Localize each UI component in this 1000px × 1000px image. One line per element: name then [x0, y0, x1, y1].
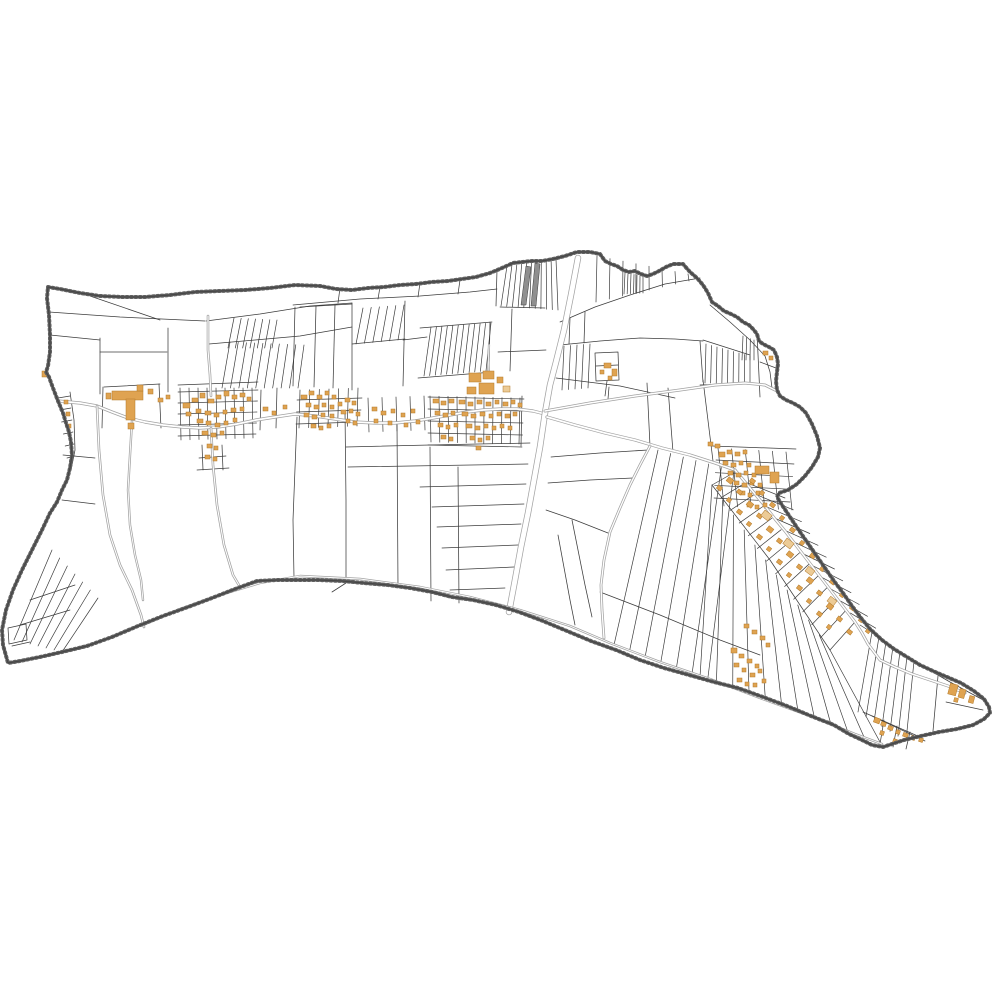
- parcel-line: [560, 278, 700, 322]
- building: [477, 400, 482, 404]
- building: [731, 463, 736, 467]
- parcel-line: [403, 337, 427, 340]
- building: [500, 424, 504, 428]
- road-casing-lane-west-1: [97, 406, 144, 627]
- building: [309, 391, 314, 395]
- building: [213, 457, 217, 461]
- building: [411, 409, 415, 413]
- building: [734, 663, 739, 667]
- parcel-line: [712, 446, 796, 449]
- parcel-line: [933, 676, 938, 731]
- building: [128, 423, 134, 429]
- parcel-strip-line-ribbon-long-strips: [766, 560, 782, 707]
- parcel-strip-line-corner-strips: [30, 566, 67, 644]
- parcel-line: [49, 312, 205, 321]
- parcel-line: [293, 417, 297, 578]
- building: [205, 411, 211, 415]
- building: [332, 395, 336, 399]
- building: [263, 407, 268, 411]
- building: [304, 413, 309, 417]
- building: [723, 461, 728, 465]
- parcel-strip-line-dense-fan: [463, 324, 469, 372]
- parcel-line: [500, 307, 545, 308]
- building: [608, 376, 612, 380]
- building: [513, 412, 517, 416]
- building: [734, 481, 739, 485]
- parcel-strip-line-dense-fan: [447, 326, 453, 375]
- parcel-strip-line-upper-west-strips: [272, 320, 277, 348]
- parcel-strip-line-east-of-road-strips: [569, 346, 571, 390]
- parcel-strip-line-east-of-road-strips: [582, 345, 584, 389]
- building: [776, 559, 782, 565]
- building: [786, 551, 794, 559]
- building: [755, 664, 759, 668]
- parcel-line: [8, 624, 27, 644]
- parcel-strip-line-northeast-dense: [711, 346, 712, 384]
- parcel-line: [432, 504, 524, 507]
- building: [233, 418, 237, 422]
- building: [215, 423, 220, 427]
- building: [441, 435, 446, 439]
- parcel-line: [560, 338, 703, 345]
- building: [518, 403, 522, 407]
- building: [762, 679, 766, 683]
- building: [356, 412, 360, 416]
- parcel-strip-line-east-cluster-horiz: [715, 485, 792, 489]
- parcel-lines-layer: [8, 256, 985, 749]
- building: [873, 717, 880, 724]
- parcel-strip-line-dense-fan: [469, 324, 475, 372]
- cadastral-map-svg: [0, 0, 1000, 1000]
- parcel-strip-line-village-d-horiz: [428, 445, 522, 447]
- building: [327, 424, 331, 428]
- parcel-strip-line-village-d-vert: [501, 398, 502, 444]
- parcel-line: [446, 567, 514, 570]
- road-road-south-branch: [601, 446, 650, 638]
- parcel-line: [178, 382, 258, 385]
- building: [495, 400, 499, 404]
- building: [66, 412, 70, 416]
- building: [726, 497, 732, 503]
- parcel-line: [276, 388, 277, 428]
- cadastral-map-view: [0, 0, 1000, 1000]
- parcel-line: [496, 270, 497, 306]
- parcel-strip-line-top-center-strips: [551, 260, 552, 310]
- building: [435, 411, 440, 415]
- parcel-strip-line-mini-group: [746, 337, 747, 360]
- building: [330, 414, 334, 418]
- building: [954, 698, 959, 703]
- building: [314, 405, 319, 409]
- parcel-strip-line-west-strips: [281, 344, 287, 388]
- parcel-line: [430, 447, 431, 601]
- parcel-strip-line-village-b-horiz: [178, 390, 258, 392]
- road-ribbon-street: [735, 470, 965, 693]
- building: [511, 400, 515, 404]
- building: [443, 413, 448, 417]
- building: [197, 419, 203, 423]
- parcel-line: [498, 350, 546, 352]
- parcel-line: [584, 312, 585, 343]
- building: [106, 393, 111, 399]
- parcel-line: [437, 524, 521, 527]
- building: [224, 421, 228, 425]
- building: [470, 436, 475, 440]
- parcel-line: [90, 296, 160, 320]
- parcel-strip-line-top-center-strips: [501, 266, 507, 306]
- parcel-strip-line-village-b-vert: [252, 388, 253, 438]
- parcel-strip-line-dense-fan: [430, 327, 437, 376]
- building: [451, 411, 455, 415]
- building: [755, 466, 769, 474]
- parcel-line: [300, 304, 352, 307]
- building: [746, 521, 752, 527]
- parcel-strip-line-dense-fan: [441, 326, 447, 375]
- parcel-strip-line-southeast-steep: [677, 464, 709, 666]
- municipal-boundary-line: [2, 252, 990, 747]
- parcel-strip-line-southeast-steep: [630, 454, 671, 651]
- hatched-parcel: [531, 263, 540, 306]
- parcel-strip-line-top-right-tight: [624, 273, 625, 294]
- parcel-line: [605, 381, 607, 396]
- building: [766, 546, 772, 552]
- parcel-strip-line-mid-strips: [356, 308, 363, 344]
- building: [776, 538, 782, 544]
- parcel-strip-line-village-d-vert: [510, 398, 511, 444]
- building: [214, 413, 219, 417]
- building: [166, 395, 170, 399]
- parcel-line: [159, 384, 161, 428]
- building: [317, 395, 322, 399]
- building: [148, 389, 153, 394]
- building: [319, 426, 323, 430]
- building: [330, 405, 334, 409]
- parcel-line: [293, 307, 295, 386]
- building: [454, 423, 458, 427]
- building: [497, 377, 503, 383]
- parcel-strip-line-northeast-dense: [716, 347, 717, 383]
- parcel-line: [450, 588, 505, 590]
- building: [388, 421, 392, 425]
- parcel-strip-line-west-strips: [273, 344, 280, 388]
- road-casing-road-northeast: [545, 383, 775, 411]
- parcel-strip-line-village-cd-vert: [368, 398, 369, 432]
- building: [486, 402, 491, 406]
- parcel-strip-line-village-cd-vert: [410, 397, 411, 431]
- parcel-strip-line-village-c-vert: [309, 390, 310, 428]
- building: [202, 431, 208, 435]
- building: [756, 534, 762, 540]
- building: [747, 659, 752, 663]
- parcel-strip-line-neck-strips: [858, 632, 872, 712]
- parcel-line: [569, 318, 570, 344]
- building: [207, 444, 212, 448]
- road-casing-lane-west-3: [211, 428, 240, 587]
- building: [338, 402, 342, 406]
- building: [186, 412, 191, 416]
- building: [796, 564, 802, 570]
- building: [742, 668, 746, 672]
- parcel-strip-line-top-center-strips: [518, 264, 522, 307]
- building: [816, 611, 822, 617]
- parcel-strip-line-east-cluster-vert: [786, 452, 792, 510]
- building: [806, 577, 814, 585]
- parcel-strip-line-corner-strips: [54, 590, 90, 650]
- parcel-strip-line-village-d-horiz: [428, 421, 523, 423]
- building: [220, 431, 224, 435]
- building: [753, 683, 757, 687]
- building: [196, 409, 201, 413]
- parcel-line: [418, 372, 493, 378]
- parcel-strip-line-west-strips: [298, 345, 304, 388]
- building: [752, 630, 757, 634]
- building: [322, 403, 326, 407]
- building: [206, 421, 211, 425]
- parcel-strip-line-southeast-steep: [645, 457, 683, 656]
- building: [769, 356, 773, 360]
- building: [789, 527, 795, 533]
- building: [192, 398, 198, 402]
- building: [492, 426, 496, 430]
- building: [604, 363, 611, 368]
- parcel-line: [548, 478, 633, 483]
- building: [760, 636, 765, 640]
- building: [968, 695, 975, 703]
- building: [311, 424, 316, 428]
- building: [469, 373, 481, 382]
- building: [737, 678, 742, 682]
- building: [223, 410, 227, 414]
- building: [600, 370, 604, 374]
- parcel-line: [333, 305, 335, 388]
- parcel-strip-line-northeast-dense: [722, 349, 723, 384]
- parcel-line: [946, 702, 983, 710]
- parcel-strip-line-village-d-horiz: [428, 397, 524, 399]
- building: [306, 403, 311, 407]
- building: [216, 395, 221, 399]
- parcel-strip-line-village-c-vert: [357, 388, 358, 426]
- parcel-strip-line-west-strips: [239, 343, 247, 388]
- building: [748, 493, 752, 497]
- parcel-strip-line-top-right-verticals: [596, 256, 597, 302]
- building: [742, 483, 747, 487]
- parcel-strip-line-corner-strips: [14, 550, 52, 640]
- parcel-line: [397, 423, 398, 588]
- building: [736, 473, 741, 477]
- parcel-strip-line-ribbon-west-ticks: [830, 622, 855, 650]
- building: [475, 426, 480, 430]
- building: [374, 419, 378, 423]
- building: [372, 407, 377, 411]
- parcel-strip-line-top-right-tight: [627, 274, 628, 294]
- building: [325, 391, 329, 395]
- parcel-strip-line-dense-fan: [458, 325, 464, 373]
- parcel-strip-line-west-strips: [264, 344, 271, 388]
- parcel-strip-line-west-boundary-ticks: [58, 396, 70, 398]
- building: [137, 385, 143, 391]
- building: [497, 412, 501, 416]
- building: [283, 405, 287, 409]
- parcel-strip-line-west-strips: [222, 342, 230, 388]
- building: [750, 673, 755, 677]
- building: [879, 730, 884, 735]
- parcel-strip-line-east-cluster-vert: [732, 449, 738, 507]
- building: [466, 424, 472, 428]
- building: [416, 420, 420, 424]
- building: [352, 401, 356, 405]
- building: [240, 407, 244, 411]
- parcel-line: [403, 301, 405, 386]
- parcel-strip-line-ribbon-west-ticks: [821, 610, 846, 637]
- parcel-strip-line-village-cd-vert: [396, 397, 397, 431]
- parcel-strip-line-dense-fan: [475, 324, 480, 372]
- parcel-strip-line-village-c-vert: [299, 390, 300, 428]
- parcel-strip-line-upper-west-strips: [265, 320, 270, 348]
- building: [112, 391, 143, 400]
- building: [231, 408, 236, 412]
- building: [449, 399, 454, 403]
- building: [459, 400, 465, 404]
- municipal-boundary-layer: [2, 252, 990, 747]
- building: [763, 351, 768, 355]
- parcel-line: [608, 387, 609, 399]
- parcel-line: [332, 412, 346, 592]
- municipal-boundary-hatch: [2, 252, 990, 747]
- parcel-strip-line-upper-west-strips: [228, 318, 234, 348]
- parcel-strip-line-upper-west-strips: [257, 319, 262, 348]
- parcel-strip-line-mid-strips: [398, 305, 404, 340]
- building: [755, 505, 759, 509]
- parcel-strip-line-ribbon-long-strips: [733, 515, 734, 689]
- parcel-strip-line-dense-fan: [424, 327, 431, 376]
- parcel-strip-line-northeast-dense: [728, 350, 729, 383]
- building: [240, 393, 245, 397]
- building: [846, 629, 852, 635]
- building: [433, 399, 439, 403]
- building: [758, 483, 762, 487]
- building: [208, 399, 214, 403]
- building: [836, 616, 842, 622]
- parcel-line: [206, 303, 352, 321]
- building: [796, 585, 802, 591]
- building: [401, 413, 405, 417]
- building: [441, 401, 446, 405]
- building: [731, 648, 737, 653]
- parcel-strip-line-dense-fan: [435, 326, 442, 375]
- parcel-line: [293, 289, 497, 305]
- building: [341, 410, 346, 414]
- parcel-line: [50, 335, 100, 340]
- parcel-strip-line-ribbon-long-strips: [700, 485, 712, 677]
- building: [478, 438, 482, 442]
- building: [484, 424, 488, 428]
- parcel-strip-line-ribbon-long-strips: [787, 590, 814, 718]
- building: [480, 412, 485, 416]
- building: [715, 444, 720, 448]
- building: [158, 398, 163, 402]
- parcel-strip-line-top-right-tight: [630, 274, 631, 294]
- parcel-strip-line-east-of-road-strips: [588, 344, 590, 388]
- building: [312, 415, 317, 419]
- parcel-strip-line-east-of-road-strips: [562, 346, 564, 390]
- building: [205, 455, 210, 459]
- building: [503, 402, 508, 406]
- parcel-strip-line-west-strips: [247, 343, 254, 388]
- parcel-strip-line-ribbon-west-ticks: [803, 587, 828, 612]
- building: [489, 414, 493, 418]
- building: [826, 624, 832, 630]
- building: [381, 411, 386, 415]
- building: [446, 425, 450, 429]
- building: [766, 643, 770, 647]
- building: [743, 450, 747, 454]
- parcel-strip-line-top-center-strips: [556, 259, 558, 310]
- parcel-line: [551, 450, 648, 457]
- parcel-strip-line-ribbon-long-strips: [716, 500, 722, 683]
- building: [769, 502, 775, 508]
- parcel-strip-line-mid-strips: [373, 307, 380, 343]
- parcel-strip-line-southeast-steep: [661, 461, 696, 662]
- parcel-strip-line-village-cd-vert: [424, 396, 425, 430]
- building: [462, 412, 468, 416]
- parcel-line: [442, 545, 518, 548]
- parcel-strip-line-mid-strips: [381, 306, 387, 341]
- building: [719, 452, 725, 457]
- building: [232, 395, 237, 399]
- parcel-line: [863, 712, 920, 737]
- building: [505, 414, 510, 418]
- parcel-strip-line-dense-fan: [480, 323, 485, 371]
- parcel-strip-line-dense-fan: [452, 325, 458, 374]
- parcel-strip-line-northeast-dense: [705, 344, 706, 383]
- building: [744, 471, 748, 475]
- building: [503, 386, 510, 392]
- building: [346, 419, 350, 423]
- building: [353, 421, 357, 425]
- parcel-strip-line-ribbon-long-strips: [776, 575, 798, 712]
- building: [200, 393, 205, 398]
- building: [211, 433, 216, 437]
- building: [64, 400, 68, 404]
- building: [467, 387, 476, 394]
- parcel-line: [700, 341, 703, 382]
- parcel-line: [558, 535, 575, 625]
- building: [806, 598, 812, 604]
- building: [349, 409, 353, 413]
- building: [183, 403, 190, 408]
- building: [612, 369, 617, 376]
- building: [468, 402, 473, 406]
- building: [708, 442, 713, 446]
- parcel-line: [703, 380, 713, 461]
- building: [438, 423, 443, 427]
- parcel-strip-line-mid-strips: [390, 306, 396, 341]
- building: [301, 395, 307, 399]
- parcel-strip-line-upper-west-strips: [243, 319, 249, 348]
- parcel-strip-line-west-strips: [230, 342, 238, 388]
- building: [214, 446, 218, 450]
- parcel-line: [314, 306, 316, 387]
- hatched-parcel: [521, 266, 531, 305]
- parcel-strip-line-village-b-horiz: [178, 401, 258, 403]
- building: [735, 452, 740, 456]
- building: [727, 450, 732, 454]
- parcel-strip-line-corner-strips: [46, 582, 83, 648]
- parcel-line: [348, 464, 528, 467]
- parcel-strip-line-west-strips: [256, 343, 263, 388]
- building: [471, 414, 476, 418]
- parcel-line: [572, 520, 592, 617]
